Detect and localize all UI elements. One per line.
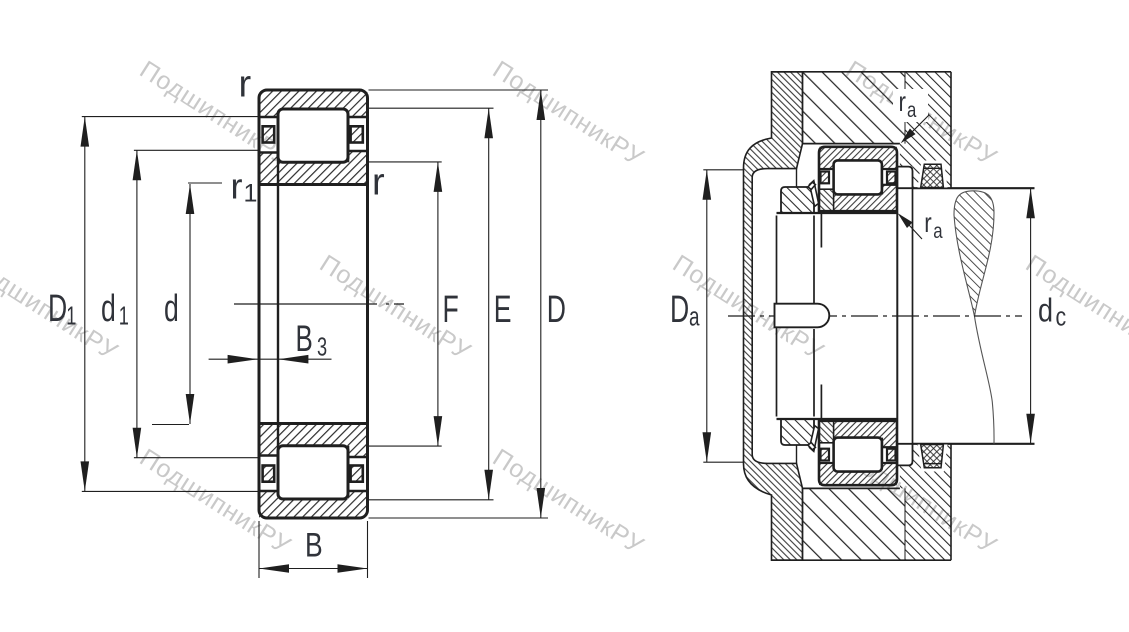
svg-text:r: r: [899, 87, 907, 118]
svg-text:d: d: [1038, 293, 1053, 329]
svg-text:a: a: [689, 301, 700, 331]
svg-text:B: B: [296, 317, 313, 359]
svg-text:D: D: [670, 287, 689, 330]
svg-text:r: r: [372, 162, 385, 204]
svg-text:D: D: [547, 287, 566, 330]
svg-text:a: a: [907, 99, 917, 122]
svg-text:1: 1: [119, 301, 129, 330]
svg-text:3: 3: [317, 332, 327, 361]
svg-text:c: c: [1055, 302, 1066, 332]
svg-text:r: r: [239, 64, 252, 106]
svg-text:a: a: [933, 220, 943, 243]
svg-text:B: B: [305, 526, 323, 564]
svg-text:F: F: [443, 287, 459, 330]
svg-text:d: d: [101, 286, 116, 329]
svg-text:E: E: [494, 287, 512, 330]
svg-text:1: 1: [244, 180, 258, 208]
svg-text:r: r: [924, 208, 932, 239]
svg-text:1: 1: [66, 301, 76, 330]
svg-text:r: r: [231, 166, 243, 207]
svg-text:d: d: [164, 286, 179, 329]
svg-text:D: D: [48, 286, 67, 329]
